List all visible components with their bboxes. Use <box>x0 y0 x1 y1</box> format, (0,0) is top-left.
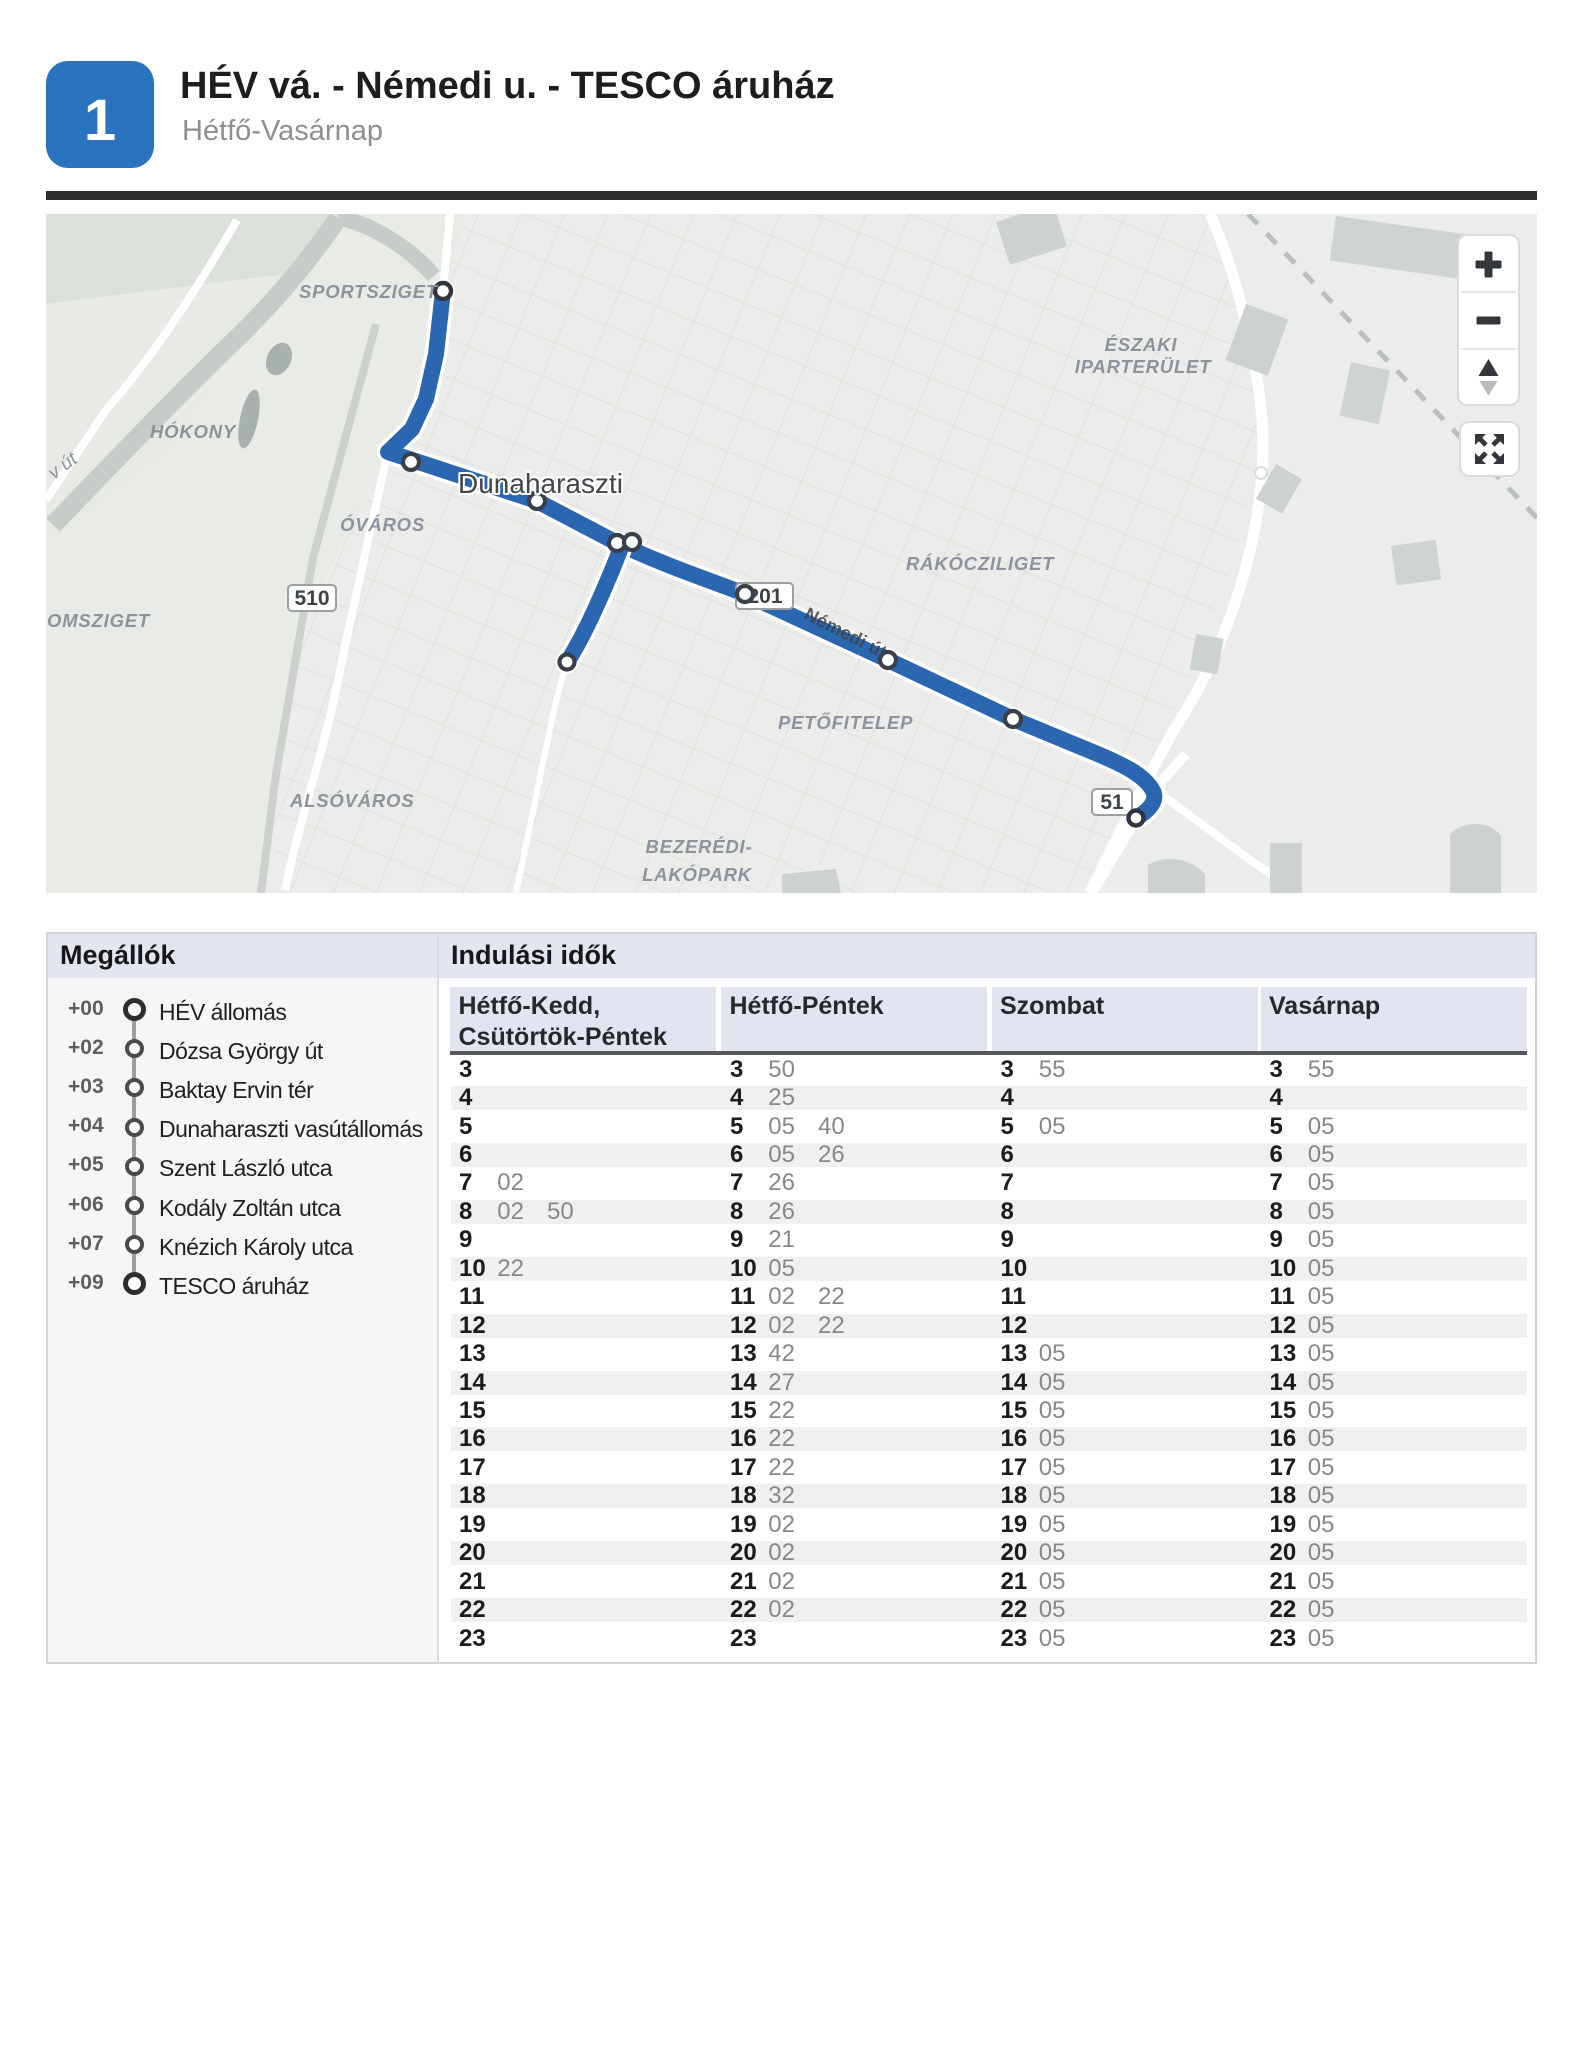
svg-text:BEZERÉDI-: BEZERÉDI- <box>646 836 753 857</box>
svg-text:ÉSZAKI: ÉSZAKI <box>1105 334 1178 355</box>
svg-text:IPARTERÜLET: IPARTERÜLET <box>1075 356 1212 377</box>
svg-text:LAKÓPARK: LAKÓPARK <box>642 864 753 885</box>
svg-text:SPORTSZIGET: SPORTSZIGET <box>299 281 439 302</box>
svg-text:510: 510 <box>294 587 329 610</box>
svg-text:ÓVÁROS: ÓVÁROS <box>340 514 425 535</box>
svg-text:51: 51 <box>1100 791 1124 814</box>
svg-text:RÁKÓCZILIGET: RÁKÓCZILIGET <box>906 553 1055 574</box>
svg-text:OMSZIGET: OMSZIGET <box>47 610 151 631</box>
svg-text:Dunaharaszti: Dunaharaszti <box>458 468 623 499</box>
svg-text:ALSÓVÁROS: ALSÓVÁROS <box>289 790 414 811</box>
svg-text:PETŐFITELEP: PETŐFITELEP <box>778 712 913 733</box>
svg-text:HÓKONY: HÓKONY <box>150 421 237 442</box>
